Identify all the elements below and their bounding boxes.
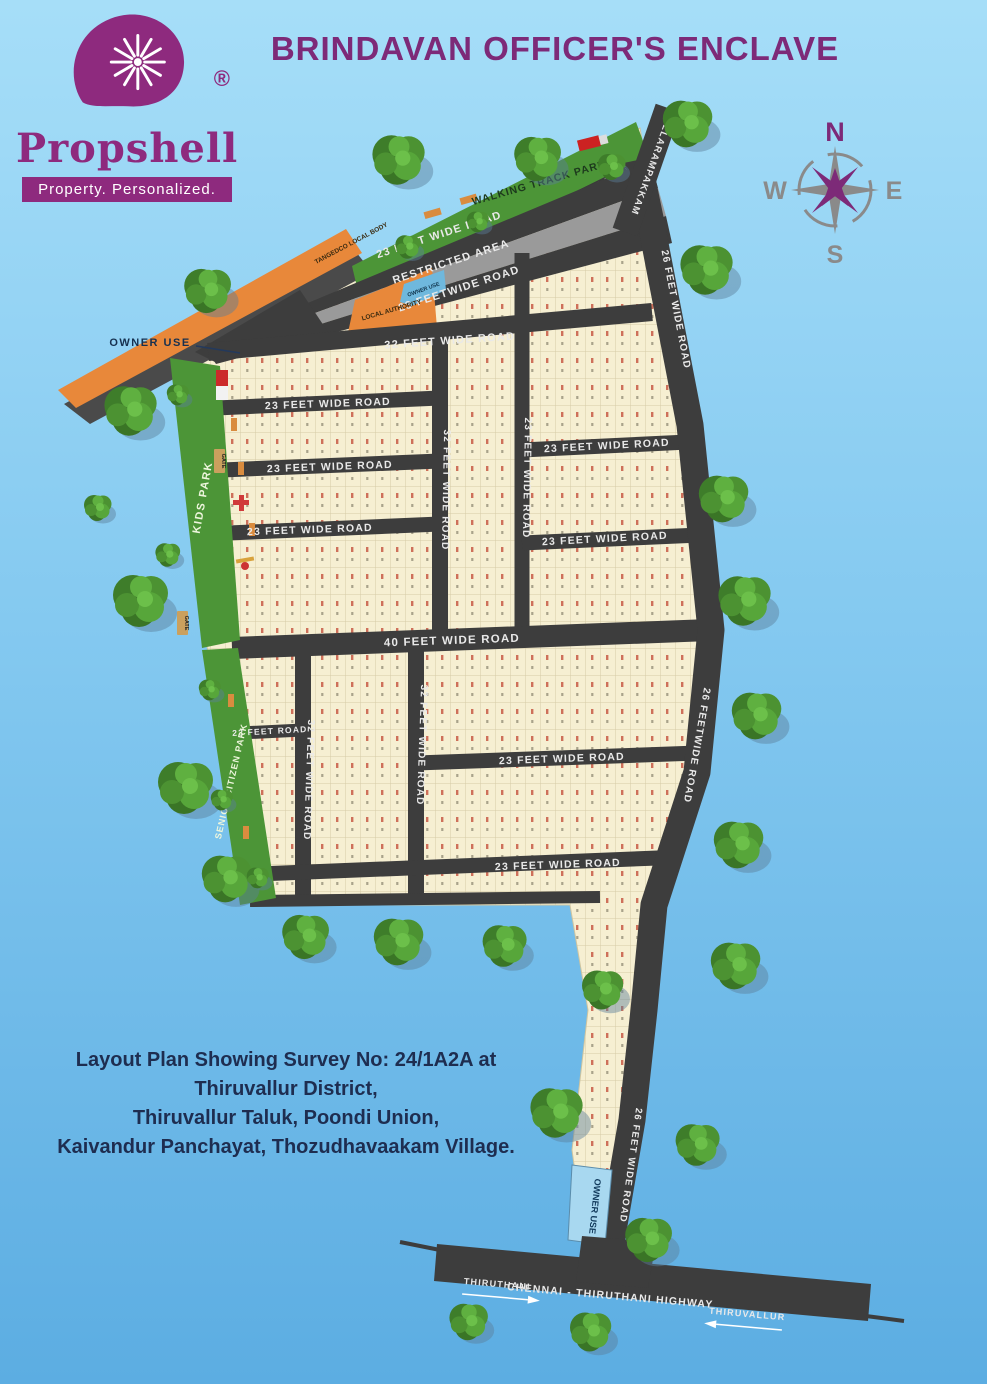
tree-icon (514, 137, 568, 185)
highway-tip-right (866, 1316, 904, 1321)
tree-icon (158, 762, 222, 819)
road-32ft-v1-label: 32 FEET WIDE ROAD (439, 429, 452, 550)
tree-icon (374, 919, 432, 970)
compass-w: W (763, 177, 787, 205)
tree-icon (372, 135, 433, 189)
tree-icon (732, 693, 790, 744)
tree-icon (663, 101, 721, 152)
owner-use-pointer-label: OWNER USE (109, 337, 190, 349)
tree-icon (711, 943, 769, 994)
thiruvallur-arrow (704, 1319, 782, 1334)
compass-n: N (825, 117, 845, 147)
tree-icon (718, 576, 779, 630)
tree-icon (84, 495, 116, 524)
compass-s: S (827, 241, 844, 269)
tree-icon (714, 822, 772, 873)
tree-icon (184, 269, 238, 317)
compass-e: E (886, 177, 903, 205)
site-plan-map: WALKING TRACK PARK 23 FEET WIDE ROAD RES… (0, 0, 987, 1384)
tree-icon (113, 575, 177, 632)
compass-rose: N S W E (763, 117, 902, 269)
highway-tip-left (400, 1242, 440, 1250)
park-bush-icon (155, 543, 184, 569)
layout-plan-page: ® Propshell Property. Personalized. BRIN… (0, 0, 987, 1384)
tree-icon (104, 386, 165, 440)
tree-icon (680, 245, 741, 299)
road-bottom-edge (250, 897, 600, 901)
tree-icon (570, 1313, 618, 1356)
tree-icon (282, 915, 336, 963)
tree-icon (483, 925, 534, 971)
road-23ft-v-label: 23 FEET WIDE ROAD (520, 417, 533, 538)
gate-2-label: GATE (183, 616, 189, 631)
gate-1-label: GATE (220, 454, 226, 469)
tree-icon (449, 1304, 494, 1344)
tree-icon (676, 1124, 727, 1170)
